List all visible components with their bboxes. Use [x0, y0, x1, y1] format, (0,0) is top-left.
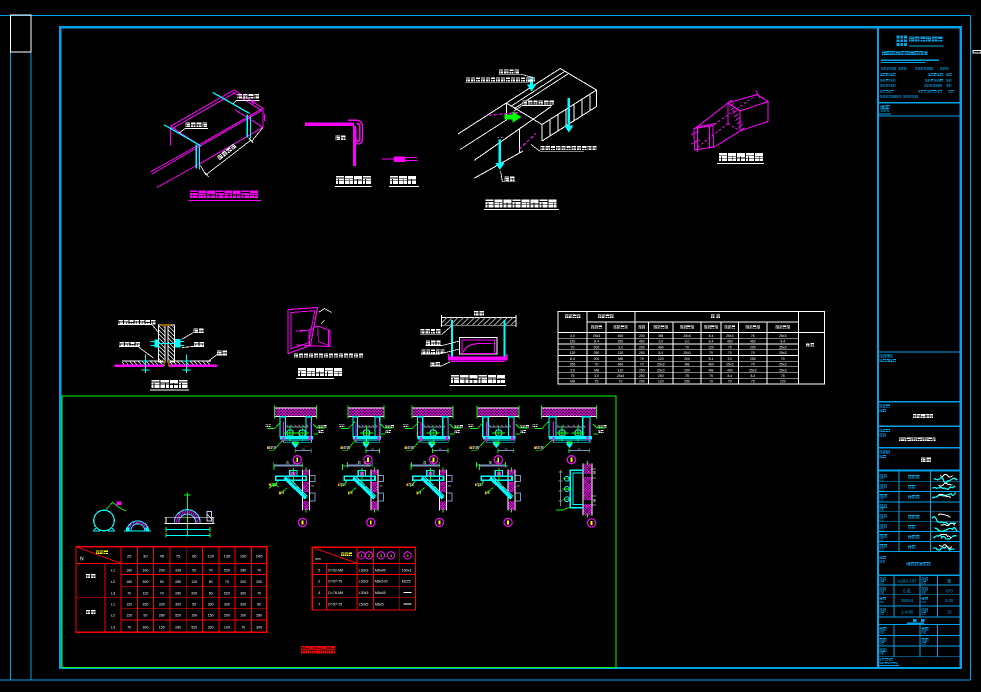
svg-text:50: 50	[192, 602, 196, 606]
svg-text:L30x3: L30x3	[359, 579, 369, 583]
svg-text:8.4: 8.4	[750, 374, 755, 378]
svg-text:120: 120	[658, 380, 664, 384]
svg-text:150: 150	[208, 613, 214, 617]
svg-text:200: 200	[240, 602, 246, 606]
svg-text:25x3: 25x3	[779, 368, 786, 372]
svg-text:M8: M8	[685, 363, 690, 367]
svg-text:70: 70	[127, 591, 131, 595]
svg-text:200: 200	[159, 569, 165, 573]
svg-text:460: 460	[658, 345, 664, 349]
svg-text:120: 120	[780, 380, 786, 384]
svg-text:3.0: 3.0	[685, 340, 690, 344]
svg-text:50: 50	[143, 613, 147, 617]
svg-text:120: 120	[570, 340, 576, 344]
svg-text:M8: M8	[709, 368, 714, 372]
svg-text:70: 70	[257, 591, 261, 595]
svg-text:30: 30	[143, 554, 148, 559]
svg-text:120: 120	[658, 357, 664, 361]
svg-text:25x3: 25x3	[779, 351, 786, 355]
svg-text:460: 460	[727, 340, 733, 344]
svg-text:100: 100	[142, 569, 148, 573]
svg-text:70: 70	[209, 569, 213, 573]
svg-text:8.4: 8.4	[709, 340, 714, 344]
svg-text:M6x45: M6x45	[375, 591, 386, 595]
svg-text:M225: M225	[402, 579, 411, 583]
svg-text:50: 50	[209, 591, 213, 595]
svg-text:330: 330	[159, 602, 165, 606]
svg-text:200: 200	[639, 380, 645, 384]
svg-text:5 乱: 5 乱	[903, 587, 912, 594]
svg-text:200: 200	[594, 357, 600, 361]
svg-text:3.0: 3.0	[618, 345, 623, 349]
svg-text:D=76-M8: D=76-M8	[328, 591, 343, 595]
svg-text:520: 520	[224, 569, 230, 573]
svg-text:70: 70	[241, 625, 245, 629]
svg-text:250: 250	[639, 351, 645, 355]
svg-text:300: 300	[208, 602, 214, 606]
svg-text:50: 50	[257, 602, 261, 606]
svg-text:39294: 39294	[901, 598, 914, 603]
svg-text:A292-107: A292-107	[898, 578, 918, 583]
svg-text:200: 200	[750, 345, 756, 349]
svg-text:520: 520	[175, 613, 181, 617]
svg-text:250: 250	[618, 340, 624, 344]
svg-text:45: 45	[160, 554, 165, 559]
svg-text:300: 300	[240, 591, 246, 595]
svg-text:75: 75	[685, 374, 689, 378]
svg-text:70: 70	[640, 363, 644, 367]
svg-text:25x3: 25x3	[657, 368, 664, 372]
svg-text:25: 25	[127, 554, 132, 559]
svg-text:520: 520	[191, 625, 197, 629]
svg-text:75: 75	[595, 380, 599, 384]
svg-text:10: 10	[947, 609, 952, 614]
svg-text:120: 120	[207, 554, 214, 559]
svg-text:25x3: 25x3	[683, 351, 690, 355]
svg-text:70: 70	[709, 351, 713, 355]
svg-text:280: 280	[175, 591, 181, 595]
svg-text:75: 75	[751, 380, 755, 384]
svg-text:8.4: 8.4	[658, 351, 663, 355]
svg-text:L1: L1	[111, 602, 115, 606]
svg-text:75: 75	[571, 374, 575, 378]
svg-text:50: 50	[160, 580, 164, 584]
svg-text:M8: M8	[594, 368, 599, 372]
svg-text:L1: L1	[111, 569, 115, 573]
svg-text:70: 70	[751, 351, 755, 355]
svg-text:25x3: 25x3	[779, 334, 786, 338]
svg-text:200: 200	[594, 345, 600, 349]
svg-text:280: 280	[256, 613, 262, 617]
svg-text:250: 250	[639, 374, 645, 378]
svg-text:330: 330	[175, 569, 181, 573]
svg-text:520: 520	[224, 591, 230, 595]
svg-text:3.0: 3.0	[570, 368, 575, 372]
svg-text:135: 135	[224, 554, 231, 559]
svg-text:200: 200	[684, 357, 690, 361]
svg-text:70: 70	[709, 380, 713, 384]
svg-text:120: 120	[126, 613, 132, 617]
svg-text:M8: M8	[570, 380, 575, 384]
svg-text:L3: L3	[111, 625, 115, 629]
svg-text:M8: M8	[658, 334, 663, 338]
svg-text:330: 330	[208, 625, 214, 629]
svg-text:25x3: 25x3	[593, 334, 600, 338]
svg-text:460: 460	[618, 334, 624, 338]
svg-text:8.4: 8.4	[727, 374, 732, 378]
svg-text:M8: M8	[618, 357, 623, 361]
svg-text:150x1: 150x1	[402, 568, 412, 572]
svg-text:70: 70	[225, 580, 229, 584]
svg-text:280: 280	[240, 569, 246, 573]
svg-text:70: 70	[728, 380, 732, 384]
svg-text:8.4: 8.4	[570, 357, 575, 361]
svg-text:M6x45: M6x45	[375, 568, 386, 572]
svg-text:70: 70	[685, 345, 689, 349]
svg-text:330: 330	[142, 602, 148, 606]
svg-text:200: 200	[224, 613, 230, 617]
svg-text:L2: L2	[111, 580, 115, 584]
svg-text:460: 460	[708, 363, 714, 367]
svg-text:3.0: 3.0	[727, 357, 732, 361]
svg-text:300: 300	[256, 625, 262, 629]
svg-text:120: 120	[708, 345, 714, 349]
svg-text:70: 70	[595, 363, 599, 367]
svg-text:5.00: 5.00	[945, 598, 954, 603]
svg-text:280: 280	[159, 613, 165, 617]
svg-text:40: 40	[504, 447, 508, 451]
svg-text:200: 200	[639, 334, 645, 338]
svg-text:75: 75	[781, 374, 785, 378]
svg-text:75: 75	[751, 334, 755, 338]
svg-text:70: 70	[751, 363, 755, 367]
svg-text:75: 75	[728, 345, 732, 349]
svg-text:25x3: 25x3	[683, 334, 690, 338]
svg-text:100: 100	[224, 625, 230, 629]
svg-text:280: 280	[175, 625, 181, 629]
svg-text:8.4: 8.4	[709, 357, 714, 361]
svg-text:L50x5: L50x5	[359, 603, 369, 607]
svg-text:300: 300	[142, 625, 148, 629]
svg-text:25x3: 25x3	[779, 363, 786, 367]
svg-text:460: 460	[618, 363, 624, 367]
svg-text:180: 180	[126, 580, 132, 584]
svg-text:70: 70	[571, 345, 575, 349]
svg-text:300: 300	[142, 580, 148, 584]
svg-text:L30x3: L30x3	[359, 568, 369, 572]
svg-text:240: 240	[256, 554, 263, 559]
svg-text:250: 250	[750, 357, 756, 361]
svg-text:50: 50	[209, 580, 213, 584]
svg-text:3.0: 3.0	[594, 374, 599, 378]
svg-text:3.0: 3.0	[570, 334, 575, 338]
svg-text:75: 75	[176, 554, 181, 559]
svg-text:25x3: 25x3	[617, 374, 624, 378]
svg-text:25x3: 25x3	[749, 368, 756, 372]
svg-text:L30x3: L30x3	[359, 591, 369, 595]
svg-text:mm: mm	[315, 557, 321, 561]
svg-text:250: 250	[658, 374, 664, 378]
svg-text:8.4: 8.4	[709, 334, 714, 338]
svg-text:40: 40	[302, 447, 306, 451]
svg-text:70: 70	[619, 380, 623, 384]
svg-text:250: 250	[570, 363, 576, 367]
svg-text:120: 120	[191, 580, 197, 584]
svg-text:75: 75	[640, 357, 644, 361]
svg-text:460: 460	[727, 368, 733, 372]
svg-text:100: 100	[240, 613, 246, 617]
svg-text:180: 180	[126, 569, 132, 573]
svg-text:8.4: 8.4	[780, 340, 785, 344]
svg-text:70: 70	[127, 625, 131, 629]
svg-text:120: 120	[618, 351, 624, 355]
svg-text:120: 120	[126, 602, 132, 606]
svg-text:25x3: 25x3	[726, 363, 733, 367]
svg-text:50: 50	[192, 569, 196, 573]
svg-text:8.4: 8.4	[594, 340, 599, 344]
svg-text:300: 300	[175, 602, 181, 606]
svg-text:190: 190	[240, 554, 247, 559]
svg-text:75: 75	[709, 374, 713, 378]
svg-text:L3: L3	[111, 591, 115, 595]
svg-text:200: 200	[191, 591, 197, 595]
svg-text:250: 250	[594, 351, 600, 355]
svg-text:150: 150	[159, 625, 165, 629]
svg-text:70: 70	[257, 569, 261, 573]
svg-text:120: 120	[618, 368, 624, 372]
svg-text:250: 250	[639, 368, 645, 372]
svg-text:70: 70	[781, 357, 785, 361]
svg-text:D=57-75: D=57-75	[328, 579, 342, 583]
svg-text:40: 40	[578, 447, 582, 451]
svg-text:200: 200	[256, 580, 262, 584]
svg-text:280: 280	[175, 580, 181, 584]
svg-text:M8x5: M8x5	[375, 603, 384, 607]
svg-text:460: 460	[750, 340, 756, 344]
svg-text:3.0: 3.0	[658, 340, 663, 344]
svg-text:100: 100	[191, 613, 197, 617]
svg-text:L2: L2	[111, 613, 115, 617]
svg-text:200: 200	[240, 580, 246, 584]
svg-text:25x3: 25x3	[726, 334, 733, 338]
svg-text:460: 460	[639, 340, 645, 344]
svg-text:D=57-75: D=57-75	[328, 603, 342, 607]
svg-text:D=52-M8: D=52-M8	[328, 568, 343, 572]
svg-text:40: 40	[439, 447, 443, 451]
svg-text:N: N	[80, 557, 84, 563]
svg-text:40: 40	[371, 447, 375, 451]
svg-text:M8x100: M8x100	[375, 579, 388, 583]
svg-text:200: 200	[684, 368, 690, 372]
svg-text:300: 300	[224, 602, 230, 606]
svg-text:1:4-85: 1:4-85	[901, 609, 914, 614]
svg-text:670: 670	[946, 588, 954, 593]
svg-text:25x3: 25x3	[779, 345, 786, 349]
svg-text:25x3: 25x3	[657, 363, 664, 367]
svg-text:120: 120	[142, 591, 148, 595]
svg-text:90: 90	[192, 554, 197, 559]
svg-text:70: 70	[160, 591, 164, 595]
svg-text:250: 250	[684, 380, 690, 384]
svg-text:70: 70	[728, 351, 732, 355]
svg-text:120: 120	[570, 351, 576, 355]
svg-text:200: 200	[639, 345, 645, 349]
